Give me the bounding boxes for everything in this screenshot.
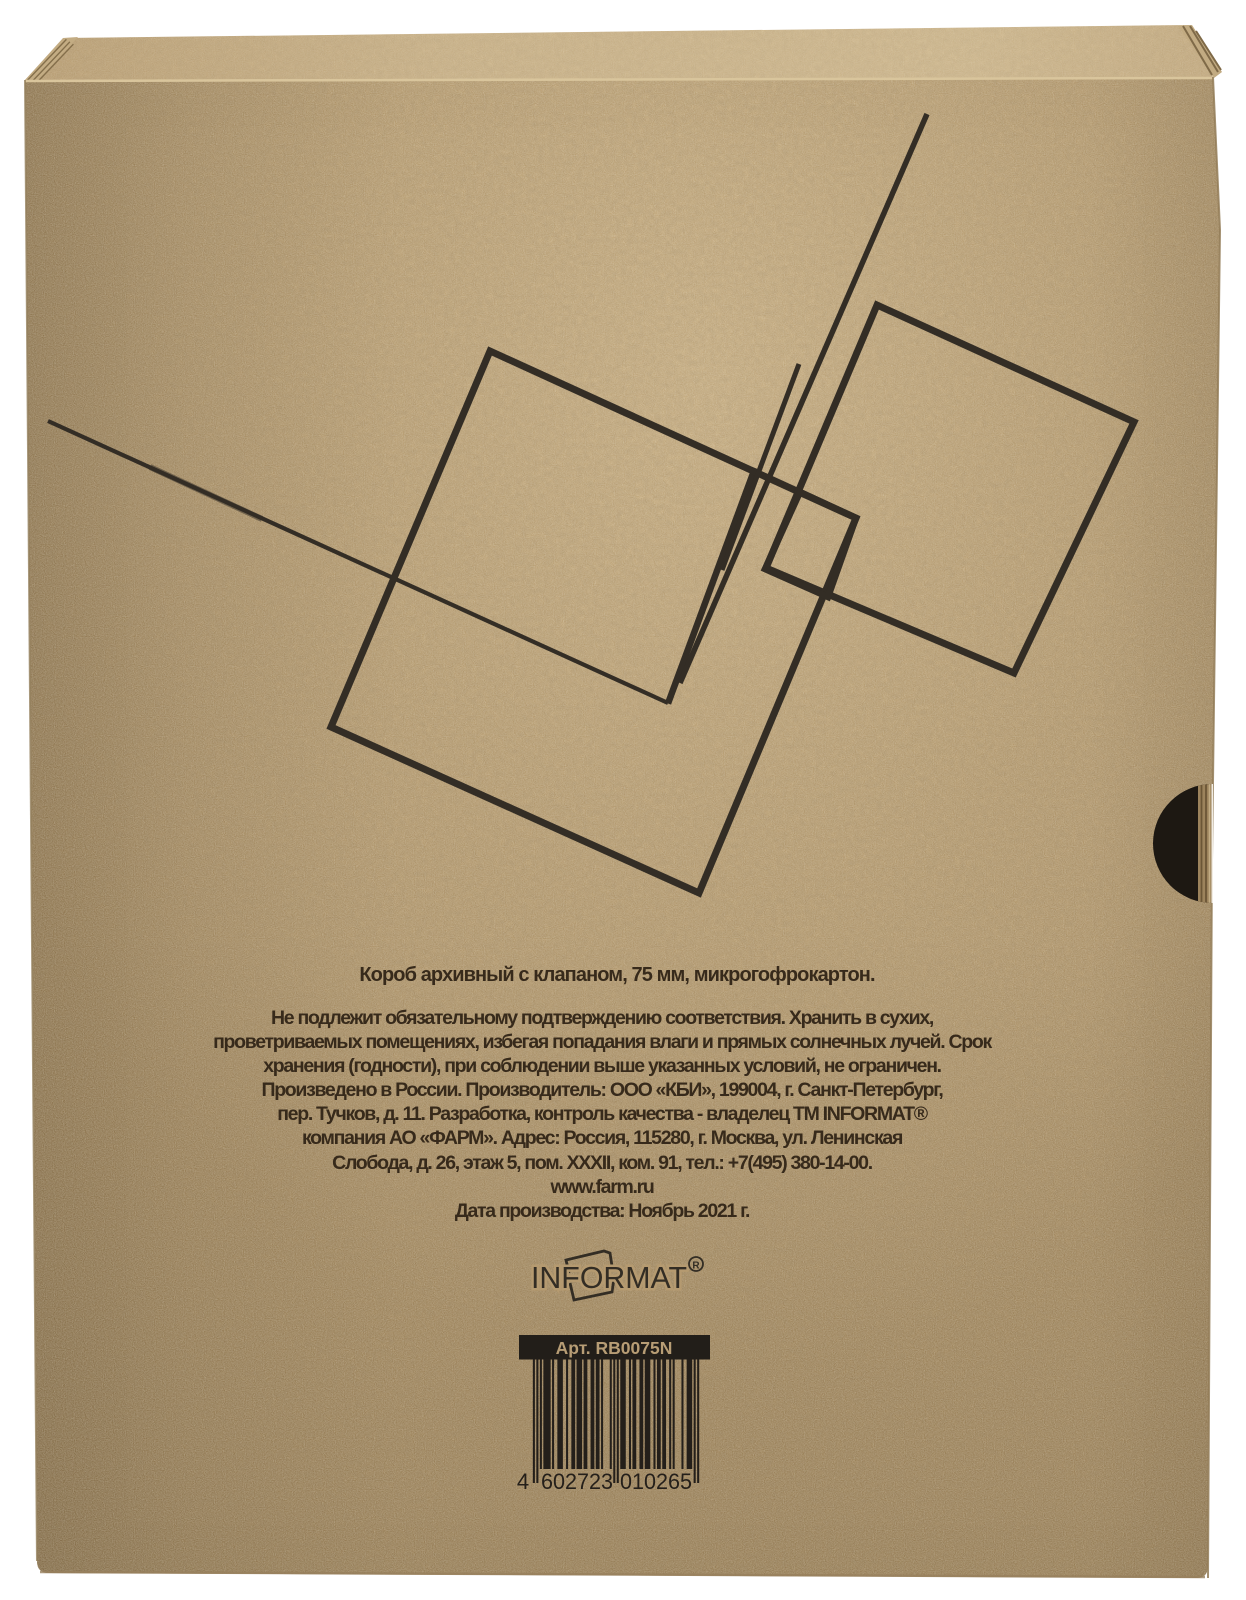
svg-text:010265: 010265 (620, 1469, 692, 1494)
svg-text:4: 4 (517, 1469, 529, 1494)
svg-text:R: R (692, 1261, 700, 1272)
svg-text:602723: 602723 (541, 1469, 613, 1494)
svg-text:Арт. RB0075N: Арт. RB0075N (556, 1338, 673, 1358)
svg-text:INFORMAT: INFORMAT (531, 1260, 687, 1295)
